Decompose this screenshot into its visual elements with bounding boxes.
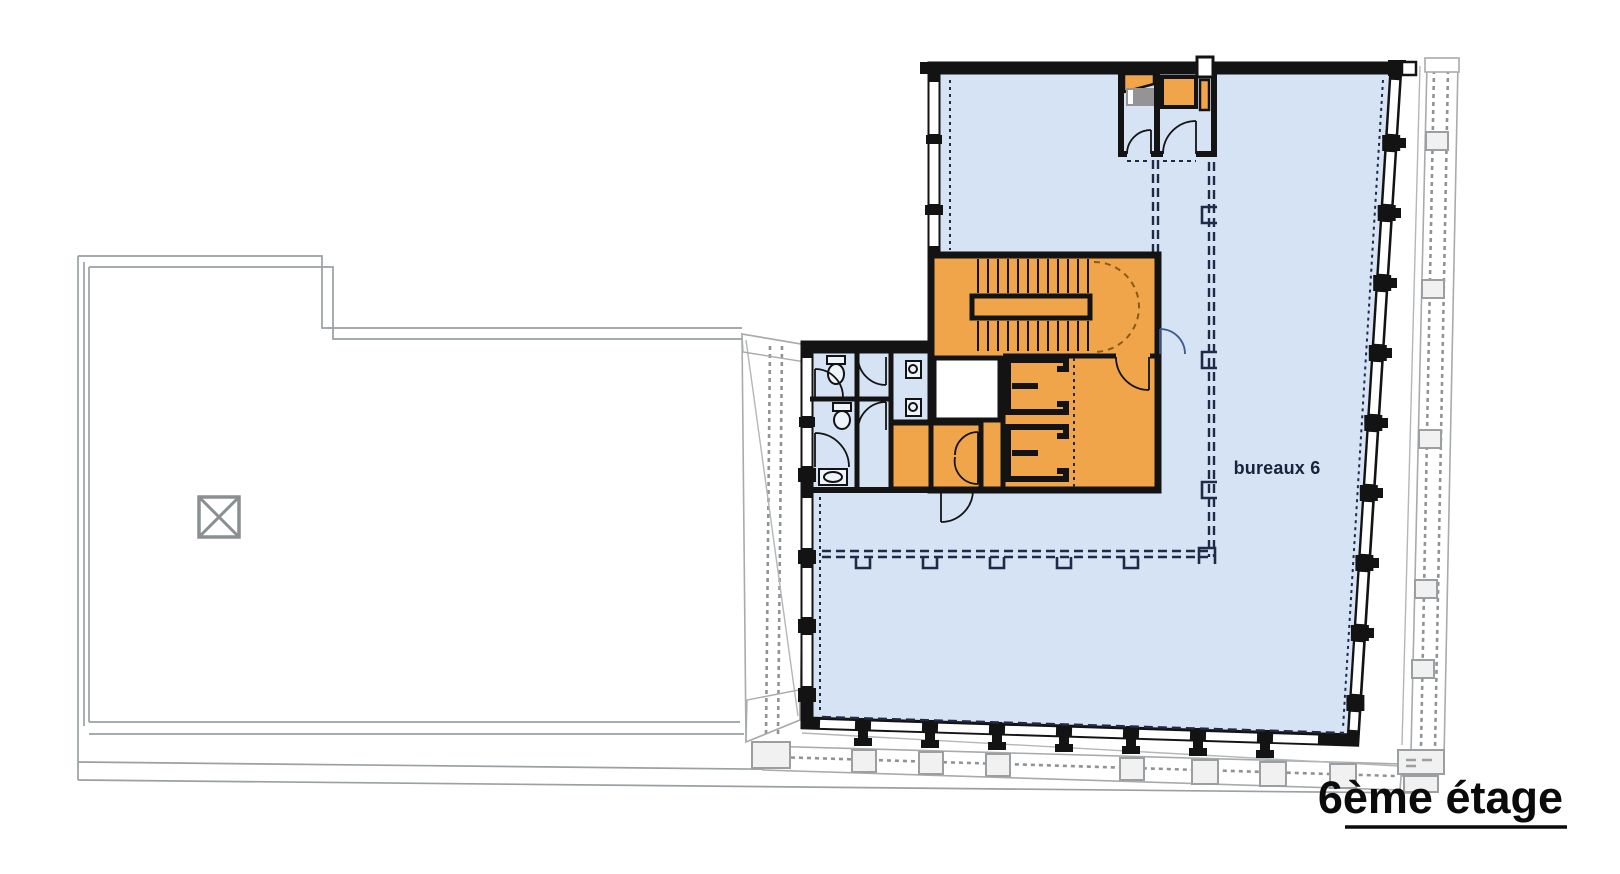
shaft-room xyxy=(934,358,1000,420)
floor-title-text: 6ème étage xyxy=(1318,772,1563,823)
service-rooms xyxy=(891,423,981,489)
roof-hatch-icon xyxy=(199,497,239,537)
duct-shaft xyxy=(1162,77,1196,107)
right-balcony-strip xyxy=(1402,58,1459,758)
toilet-fixture xyxy=(833,403,851,429)
room-label-bureaux-6: bureaux 6 xyxy=(1234,458,1321,478)
core-block xyxy=(891,255,1185,522)
floor-title: 6ème étage xyxy=(1318,772,1567,827)
left-balcony-strip xyxy=(742,334,807,742)
floor-plan-page: bureaux 6 6ème étage xyxy=(0,0,1620,874)
sink-fixture xyxy=(819,469,847,485)
floor-plan-canvas: bureaux 6 6ème étage xyxy=(0,0,1620,874)
room-labels: bureaux 6 xyxy=(1234,458,1321,478)
